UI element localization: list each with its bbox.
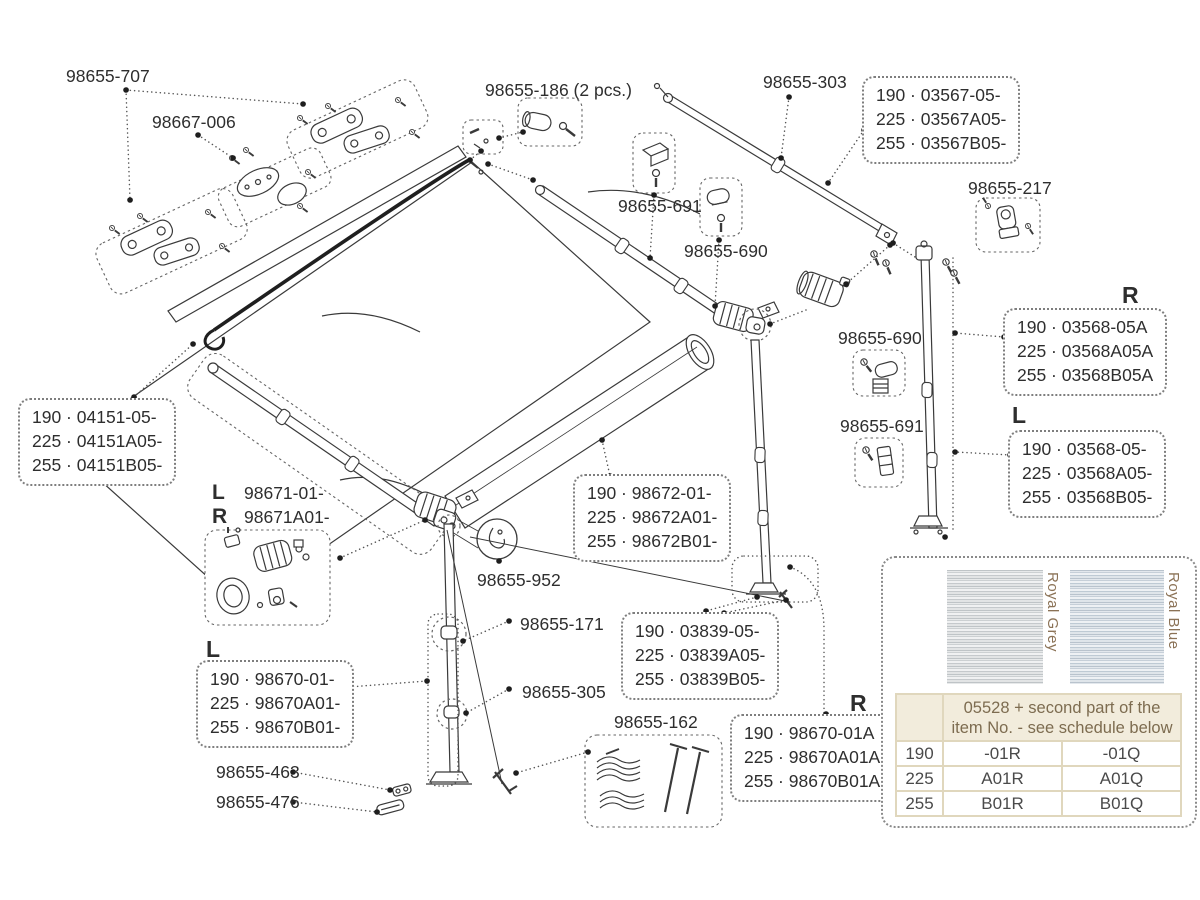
part-label-98655-952: 98655-952 — [477, 570, 561, 590]
table-header-line2: item No. - see schedule below — [951, 718, 1172, 738]
part-number-line: 255 · 98672B01- — [587, 529, 717, 553]
part-box-98670-left: 190 · 98670-01- 225 · 98670A01- 255 · 98… — [196, 660, 354, 748]
part-number-line: 190 · 98672-01- — [587, 481, 717, 505]
size-cell: 255 — [897, 792, 942, 815]
part-label-98655-303: 98655-303 — [763, 72, 847, 92]
part-label-98655-463: 98655-463 — [216, 762, 300, 782]
part-number-line: 225 · 98672A01- — [587, 505, 717, 529]
part-number-line: 225 · 03839A05- — [635, 643, 765, 667]
side-letter: R — [212, 505, 244, 529]
grey-code-cell: -01R — [944, 742, 1061, 765]
part-box-04151: 190 · 04151-05- 225 · 04151A05- 255 · 04… — [18, 398, 176, 486]
part-label-98655-217: 98655-217 — [968, 178, 1052, 198]
side-letter: L — [212, 481, 244, 505]
part-number-line: 190 · 03839-05- — [635, 619, 765, 643]
part-label-98655-707: 98655-707 — [66, 66, 150, 86]
part-number-line: 255 · 03568B05- — [1022, 485, 1152, 509]
side-letter-left: L — [1012, 402, 1026, 429]
table-corner-cell — [897, 695, 942, 740]
side-letter-right-leg: R — [850, 690, 867, 717]
part-label-98655-691-top: 98655-691 — [618, 196, 702, 216]
part-number-line: 225 · 03567A05- — [876, 107, 1006, 131]
part-number: 98671A01- — [244, 507, 330, 527]
part-number-line: 255 · 04151B05- — [32, 453, 162, 477]
part-box-03567: 190 · 03567-05- 225 · 03567A05- 255 · 03… — [862, 76, 1020, 164]
part-box-98672: 190 · 98672-01- 225 · 98672A01- 255 · 98… — [573, 474, 731, 562]
part-number-line: 190 · 03567-05- — [876, 83, 1006, 107]
part-label-98655-690-right: 98655-690 — [838, 328, 922, 348]
blue-code-cell: -01Q — [1063, 742, 1180, 765]
part-label-98655-171: 98655-171 — [520, 614, 604, 634]
grey-code-cell: B01R — [944, 792, 1061, 815]
part-box-98670-right: 190 · 98670-01A 225 · 98670A01A 255 · 98… — [730, 714, 894, 802]
part-number-line: 190 · 04151-05- — [32, 405, 162, 429]
part-label-98655-186: 98655-186 (2 pcs.) — [485, 80, 632, 100]
part-box-03839: 190 · 03839-05- 225 · 03839A05- 255 · 03… — [621, 612, 779, 700]
part-number-line: 190 · 98670-01A — [744, 721, 880, 745]
parts-diagram-page: 98655-707 98667-006 98655-186 (2 pcs.) 9… — [0, 0, 1200, 900]
part-number-line: 190 · 98670-01- — [210, 667, 340, 691]
side-letter-left-leg: L — [206, 636, 220, 663]
part-number-line: 225 · 03568A05A — [1017, 339, 1153, 363]
swatch-label: Royal Grey — [1044, 572, 1061, 652]
size-cell: 225 — [897, 767, 942, 790]
blue-code-cell: B01Q — [1063, 792, 1180, 815]
part-number-line: 255 · 03567B05- — [876, 131, 1006, 155]
part-number-line: 255 · 03839B05- — [635, 667, 765, 691]
part-label-98655-162: 98655-162 — [614, 712, 698, 732]
part-label-98655-476: 98655-476 — [216, 792, 300, 812]
part-box-03568-right: 190 · 03568-05A 225 · 03568A05A 255 · 03… — [1003, 308, 1167, 396]
arm-assembly-codes: L98671-01- R98671A01- — [212, 481, 330, 529]
part-number-line: 225 · 98670A01A — [744, 745, 880, 769]
table-header-line1: 05528 + second part of the — [964, 698, 1161, 718]
part-number-line: 255 · 98670B01- — [210, 715, 340, 739]
part-number-line: 190 · 03568-05A — [1017, 315, 1153, 339]
swatch-texture — [947, 570, 1043, 684]
fabric-swatch-royal-grey: Royal Grey — [947, 570, 1061, 684]
part-number-line: 225 · 03568A05- — [1022, 461, 1152, 485]
swatch-texture — [1070, 570, 1164, 684]
part-label-98667-006: 98667-006 — [152, 112, 236, 132]
table-header-cell: 05528 + second part of the item No. - se… — [944, 695, 1180, 740]
fabric-colour-table: Royal Grey Royal Blue 05528 + second par… — [881, 556, 1197, 828]
part-number-line: 225 · 04151A05- — [32, 429, 162, 453]
fabric-code-grid: 05528 + second part of the item No. - se… — [895, 693, 1182, 817]
fabric-swatch-royal-blue: Royal Blue — [1070, 570, 1182, 684]
part-label-98655-305: 98655-305 — [522, 682, 606, 702]
part-label-98655-690-top: 98655-690 — [684, 241, 768, 261]
part-box-03568-left: 190 · 03568-05- 225 · 03568A05- 255 · 03… — [1008, 430, 1166, 518]
grey-code-cell: A01R — [944, 767, 1061, 790]
part-number-line: 190 · 03568-05- — [1022, 437, 1152, 461]
side-letter-right: R — [1122, 282, 1139, 309]
part-number-line: 225 · 98670A01- — [210, 691, 340, 715]
size-cell: 190 — [897, 742, 942, 765]
blue-code-cell: A01Q — [1063, 767, 1180, 790]
part-number-line: 255 · 98670B01A — [744, 769, 880, 793]
part-number-line: 255 · 03568B05A — [1017, 363, 1153, 387]
part-label-98655-691-right: 98655-691 — [840, 416, 924, 436]
swatch-label: Royal Blue — [1165, 572, 1182, 650]
part-number: 98671-01- — [244, 483, 324, 503]
